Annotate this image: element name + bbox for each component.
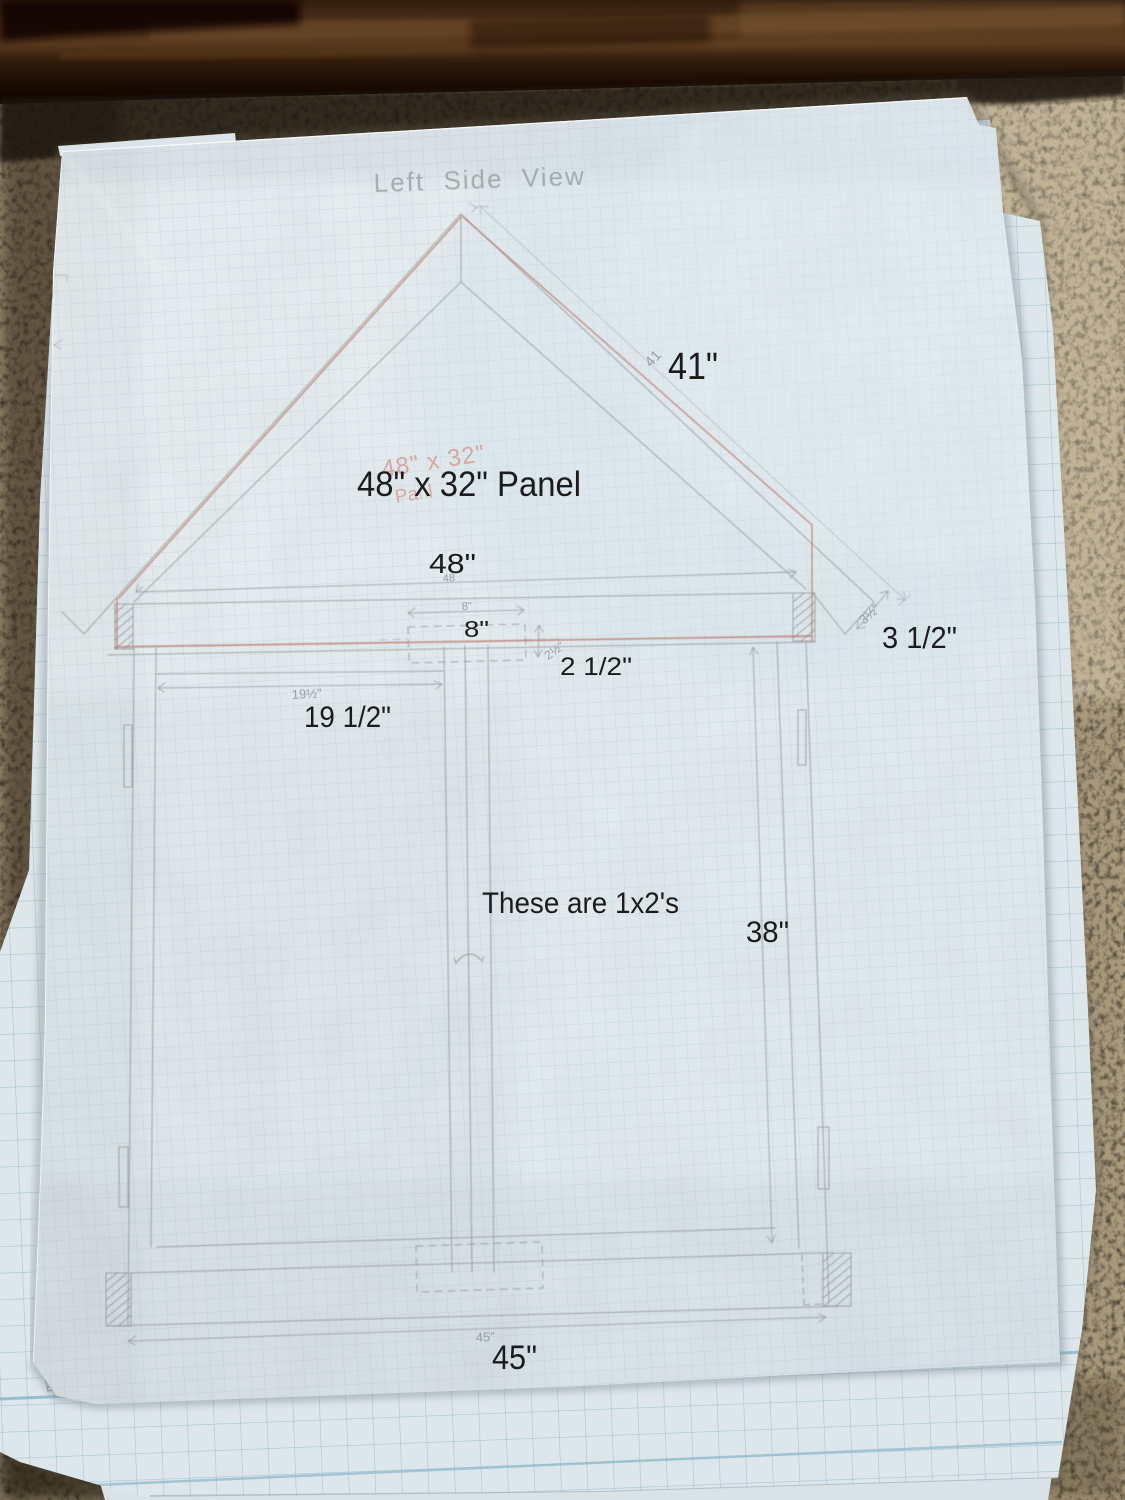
svg-text:38": 38" <box>746 916 789 949</box>
svg-text:These are 1x2's: These are 1x2's <box>482 887 679 920</box>
svg-text:41": 41" <box>668 346 718 388</box>
svg-text:19½": 19½" <box>291 685 322 702</box>
svg-text:45": 45" <box>492 1339 537 1377</box>
svg-text:8": 8" <box>462 600 473 613</box>
svg-text:19 1/2": 19 1/2" <box>304 701 391 734</box>
svg-text:8": 8" <box>464 616 489 642</box>
svg-text:48": 48" <box>429 548 476 579</box>
svg-text:2 1/2": 2 1/2" <box>560 653 632 681</box>
svg-text:48" x 32" Panel: 48" x 32" Panel <box>357 465 581 504</box>
svg-text:3 1/2": 3 1/2" <box>882 620 957 655</box>
